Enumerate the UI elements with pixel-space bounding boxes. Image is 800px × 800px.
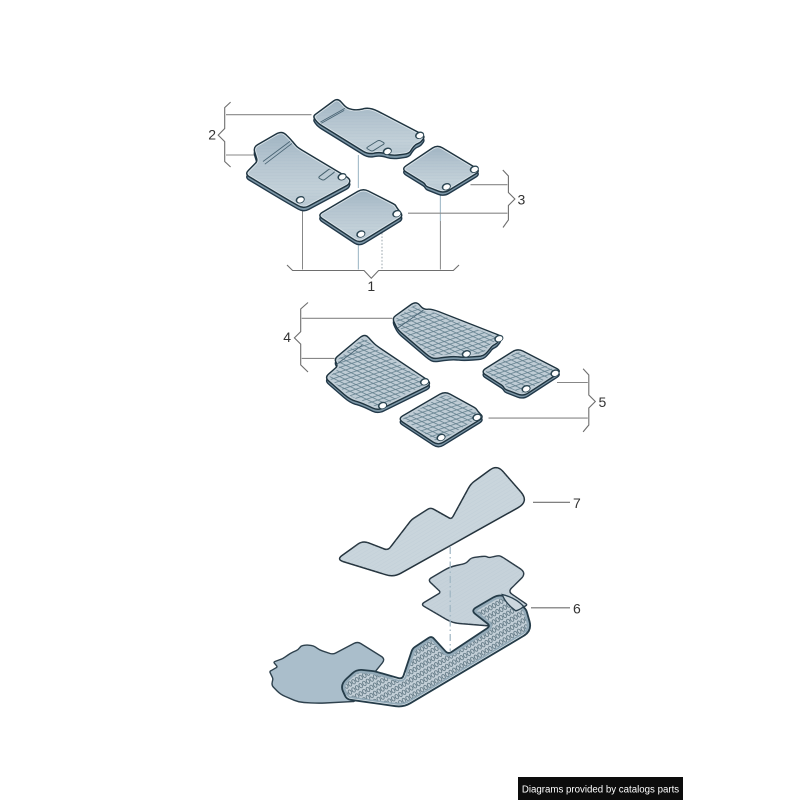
svg-text:1: 1 <box>367 278 375 294</box>
svg-text:Diagrams provided by catalogs: Diagrams provided by catalogs parts <box>522 785 679 796</box>
svg-text:3: 3 <box>518 192 526 208</box>
svg-text:6: 6 <box>573 601 581 617</box>
svg-text:4: 4 <box>283 329 291 345</box>
svg-text:7: 7 <box>573 495 581 511</box>
svg-text:2: 2 <box>208 127 216 143</box>
svg-text:5: 5 <box>599 394 607 410</box>
